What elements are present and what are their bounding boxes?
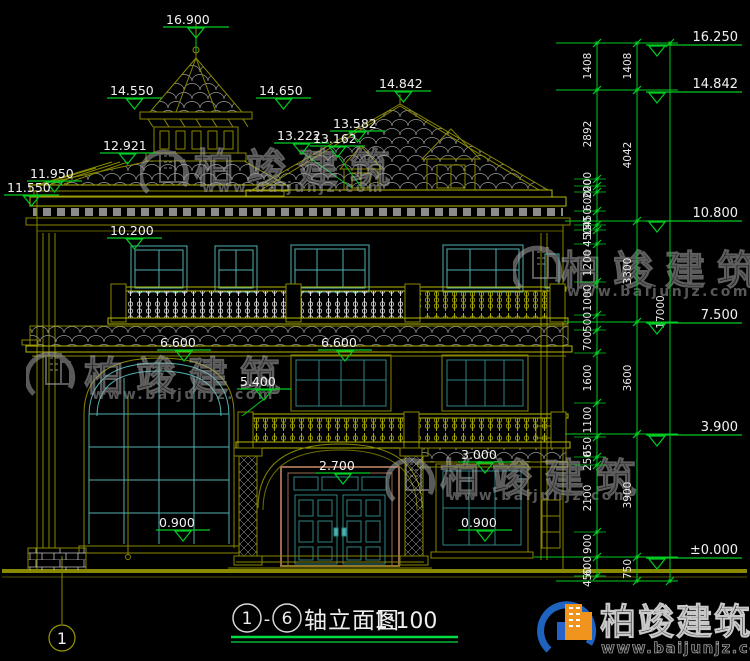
cad-canvas: 柏竣建筑www.baijunjz.com柏竣建筑www.baijunjz.com…: [0, 0, 750, 661]
dimension-value: 250: [582, 451, 594, 471]
third-floor-balustrade: [108, 284, 568, 324]
elevation-label: 0.900: [156, 515, 210, 541]
axis-bubble-number: 1: [57, 629, 67, 648]
drawing-scale: 1:100: [374, 609, 437, 634]
elevation-value: 3.900: [701, 420, 738, 435]
dimension-value: 2100: [582, 485, 594, 512]
right-elevation-label: 10.800: [646, 206, 742, 232]
elevation-value: 6.600: [160, 335, 196, 350]
elevation-value: ±0.000: [690, 543, 738, 558]
dimension-chain: 14084042330036003900750: [622, 39, 641, 585]
dimension-value: 450: [582, 227, 594, 247]
logo-url-text: www.baijunjz.com: [601, 639, 750, 657]
elevation-value: 11.950: [30, 166, 74, 181]
elevation-value: 13.582: [333, 116, 377, 131]
elevation-label: 0.900: [458, 515, 512, 541]
dimension-value: 1600: [582, 365, 594, 392]
elevation-label: 14.842: [376, 76, 431, 102]
elevation-value: 16.900: [166, 12, 210, 27]
dimension-value: 1200: [582, 250, 594, 277]
entrance-door: [281, 467, 399, 566]
dimension-value: 3600: [622, 365, 634, 392]
mid-skirt-roof: [26, 326, 572, 356]
dimension-chain: 17000: [655, 39, 674, 585]
elevation-value: 10.200: [110, 223, 154, 238]
right-elevation-label: ±0.000: [646, 543, 742, 569]
elevation-drawing: 柏竣建筑www.baijunjz.com柏竣建筑www.baijunjz.com…: [0, 0, 750, 661]
axis-start-number: 1: [242, 609, 253, 629]
dimension-chain: 1408289220020060045015045012001000500700…: [574, 39, 606, 587]
watermark: 柏竣建筑www.baijunjz.com: [387, 456, 648, 504]
elevation-value: 5.400: [240, 374, 276, 389]
title-block: 1 - 6 轴立面图 1:100: [231, 604, 458, 642]
dimension-value: 500: [582, 312, 594, 332]
elevation-value: 0.900: [159, 515, 195, 530]
dimension-value: 700: [582, 331, 594, 351]
dimension-value: 1000: [582, 285, 594, 312]
stone-base: [28, 548, 86, 571]
elevation-label: 10.200: [107, 223, 162, 249]
dimension-value: 2892: [582, 121, 594, 148]
watermark-url: www.baijunjz.com: [448, 488, 631, 504]
elevation-value: 14.842: [379, 76, 423, 91]
logo-building-icon: [565, 604, 582, 640]
axis-separator: -: [264, 609, 271, 630]
elevation-value: 13.162: [313, 131, 357, 146]
axis-bubble: 1: [49, 625, 75, 651]
axis-end-number: 6: [282, 609, 293, 629]
second-floor-windows: [291, 355, 528, 411]
dimension-value: 450: [582, 567, 594, 587]
watermark-logo-icon: [27, 354, 73, 394]
dimension-value: 3900: [622, 482, 634, 509]
elevation-value: 16.250: [693, 30, 739, 45]
elevation-value: 14.550: [110, 83, 154, 98]
elevation-value: 12.921: [103, 138, 147, 153]
dimension-value: 3300: [622, 258, 634, 285]
dimension-value: 1100: [582, 407, 594, 434]
elevation-value: 14.650: [259, 83, 303, 98]
dimension-value: 900: [582, 534, 594, 554]
watermarks: 柏竣建筑www.baijunjz.com柏竣建筑www.baijunjz.com…: [27, 146, 750, 504]
dimension-value: 1408: [582, 53, 594, 80]
elevation-value: 7.500: [701, 308, 738, 323]
dimension-value: 1408: [622, 53, 634, 80]
brand-logo: 柏竣建筑 www.baijunjz.com: [541, 602, 750, 657]
right-elevation-label: 3.900: [646, 420, 742, 446]
elevation-label: 14.650: [256, 83, 311, 109]
logo-brand-text: 柏竣建筑: [600, 602, 750, 643]
elevation-value: 11.550: [7, 180, 51, 195]
elevation-value: 0.900: [461, 515, 497, 530]
third-floor-windows: [131, 245, 559, 292]
watermark-url: www.baijunjz.com: [202, 180, 385, 196]
main-cornice: [26, 197, 570, 231]
elevation-value: 14.842: [693, 77, 739, 92]
elevation-value: 10.800: [693, 206, 739, 221]
elevation-label: 14.550: [107, 83, 162, 109]
watermark-logo-icon: [514, 248, 560, 288]
elevation-value: 6.600: [321, 335, 357, 350]
dimension-value: 750: [622, 559, 634, 579]
dimension-value: 4042: [622, 142, 634, 169]
elevation-value: 2.700: [319, 458, 355, 473]
elevation-value: 3.000: [461, 447, 497, 462]
